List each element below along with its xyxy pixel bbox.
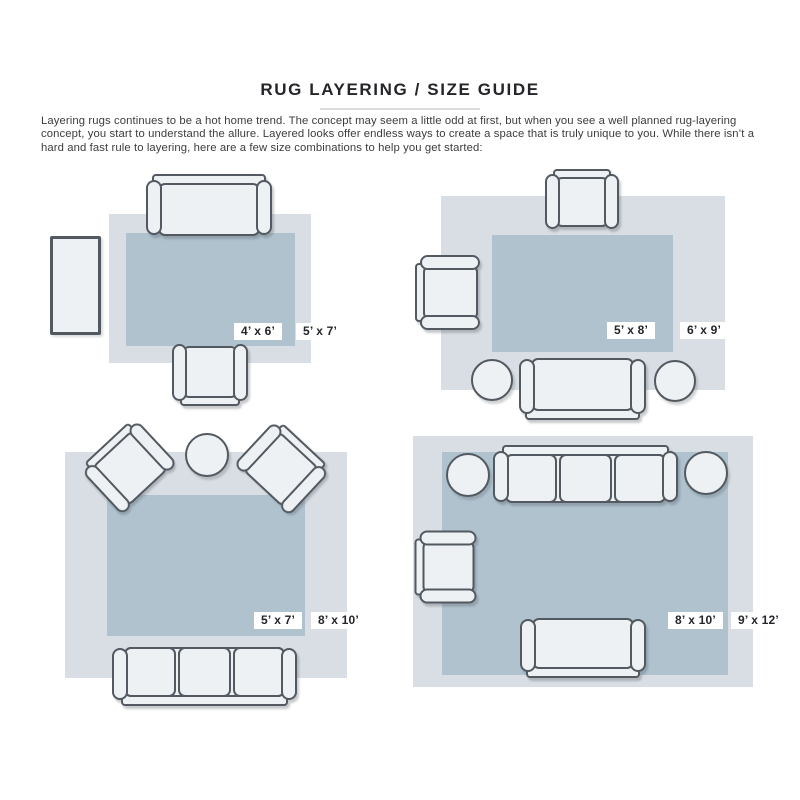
chair-arm-left xyxy=(545,174,560,229)
chair-seat xyxy=(182,346,238,398)
top-rug-size-label: 8’ x 10’ xyxy=(668,612,723,629)
sofa-seat xyxy=(531,358,634,411)
armchair xyxy=(545,169,619,229)
round-side-table xyxy=(684,451,728,495)
three-seat-sofa xyxy=(112,647,297,706)
chair-arm-right xyxy=(420,255,480,270)
armchair xyxy=(172,344,248,406)
loveseat xyxy=(520,618,646,678)
chair-arm-right xyxy=(172,344,187,401)
sofa-arm-right xyxy=(112,648,128,700)
loveseat xyxy=(146,174,272,236)
chair-seat xyxy=(423,541,475,594)
rug-layering-size-guide: RUG LAYERING / SIZE GUIDE Layering rugs … xyxy=(0,0,800,800)
top-rug-size-label: 4’ x 6’ xyxy=(234,323,282,340)
round-side-table xyxy=(446,453,490,497)
sofa-arm-right xyxy=(520,619,536,672)
chair-arm-right xyxy=(420,531,477,546)
sofa xyxy=(519,358,646,420)
base-rug-size-label: 5’ x 7’ xyxy=(296,323,344,340)
intro-text: Layering rugs continues to be a hot home… xyxy=(41,115,763,155)
sofa-seat xyxy=(532,618,634,669)
sofa-arm-left xyxy=(146,180,162,235)
sofa-arm-left xyxy=(281,648,297,700)
seat-cushion xyxy=(233,647,285,697)
sofa-arm-right xyxy=(519,359,535,414)
chair-arm-left xyxy=(233,344,248,401)
top-rug-size-label: 5’ x 7’ xyxy=(254,612,302,629)
sofa-arm-left xyxy=(630,359,646,414)
sofa-arm-left xyxy=(630,619,646,672)
seat-cushion xyxy=(559,454,611,503)
armchair xyxy=(415,531,477,604)
round-side-table xyxy=(471,359,513,401)
seat-cushion xyxy=(124,647,176,697)
chair-arm-right xyxy=(604,174,619,229)
seat-cushion xyxy=(505,454,557,503)
base-rug-size-label: 6’ x 9’ xyxy=(680,322,728,339)
chair-arm-left xyxy=(420,589,477,604)
seat-cushion xyxy=(178,647,230,697)
chair-seat xyxy=(423,265,478,320)
seat-cushion xyxy=(614,454,666,503)
base-rug-size-label: 9’ x 12’ xyxy=(731,612,786,629)
sofa-arm-right xyxy=(256,180,272,235)
round-side-table xyxy=(654,360,696,402)
sofa-arm-left xyxy=(493,451,509,502)
round-side-table xyxy=(185,433,229,477)
base-rug-size-label: 8’ x 10’ xyxy=(311,612,366,629)
title-divider xyxy=(320,108,480,110)
three-seat-sofa xyxy=(493,445,678,503)
chair-arm-left xyxy=(420,315,480,330)
sofa-cushions xyxy=(505,454,666,503)
sofa-cushions xyxy=(124,647,285,697)
sofa-seat xyxy=(158,183,260,236)
top-rug-size-label: 5’ x 8’ xyxy=(607,322,655,339)
sofa-arm-right xyxy=(662,451,678,502)
armchair xyxy=(415,255,480,330)
console-table xyxy=(50,236,101,335)
page-title: RUG LAYERING / SIZE GUIDE xyxy=(0,80,800,100)
chair-seat xyxy=(555,177,609,227)
